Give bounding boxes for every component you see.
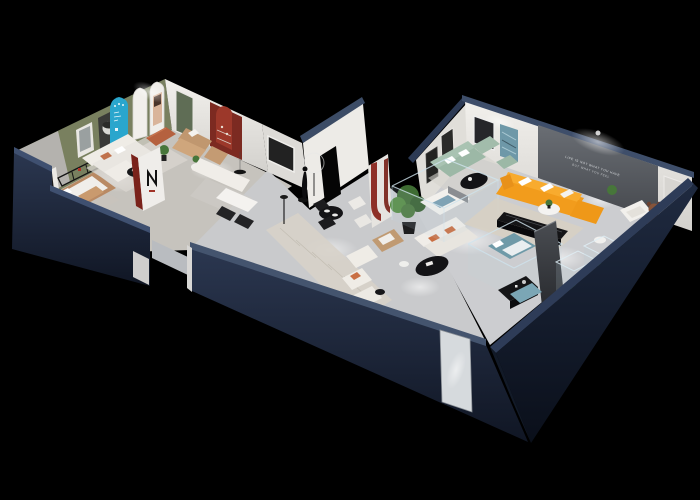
shelf-red-book — [78, 168, 81, 171]
white-side-table — [399, 261, 409, 267]
coffee-mug — [515, 285, 518, 288]
red-arch-pillar — [368, 154, 392, 228]
niche-vase — [226, 133, 228, 135]
small-plant — [607, 185, 617, 195]
brand-logo-red — [149, 190, 155, 192]
niche-vase — [221, 126, 223, 128]
table-decor — [468, 177, 472, 181]
spotlight-source — [596, 131, 601, 136]
mini-tree-pot — [548, 205, 551, 209]
front-wall-left-cap — [187, 245, 192, 292]
side-table-black — [375, 289, 385, 295]
statue-head — [303, 167, 308, 172]
plant-pot — [162, 155, 167, 161]
table-plate — [324, 210, 330, 213]
floor-lamp-shade — [280, 195, 288, 199]
render-canvas: LIFE IS NOT WHAT YOU HAVE BUT WHAT YOU F… — [0, 0, 700, 500]
pendant-lamp — [234, 170, 246, 174]
kettle — [522, 280, 526, 284]
showroom-isometric-render: LIFE IS NOT WHAT YOU HAVE BUT WHAT YOU F… — [0, 0, 700, 500]
table-plate — [332, 214, 338, 217]
light-pool — [400, 277, 440, 297]
